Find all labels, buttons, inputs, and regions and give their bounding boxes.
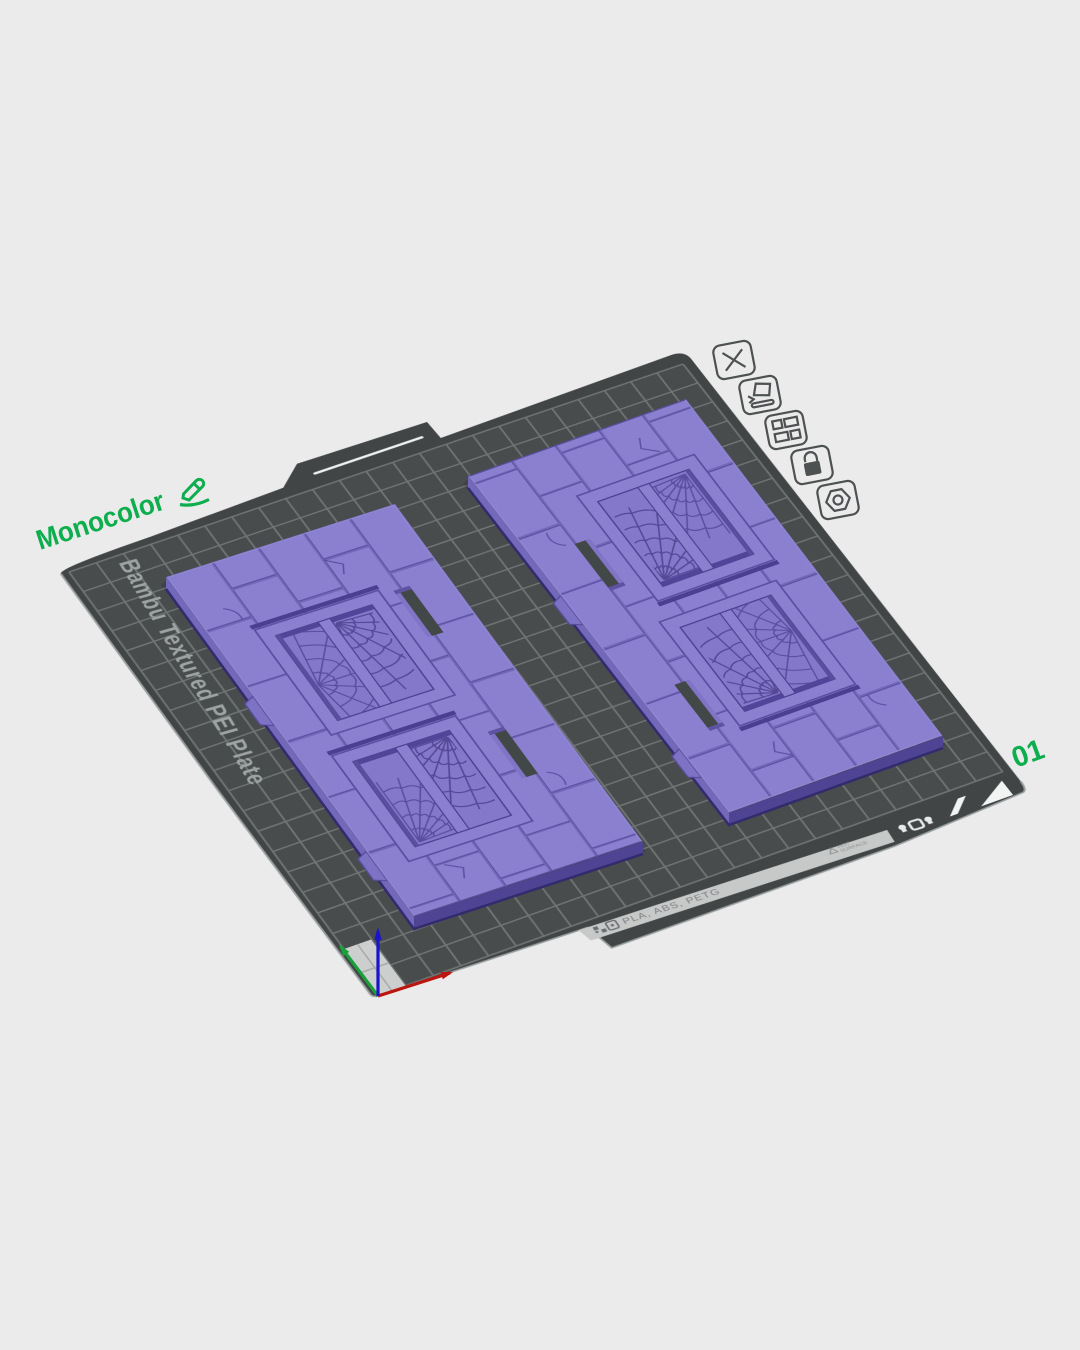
svg-text:01: 01: [1007, 733, 1048, 774]
svg-text:Monocolor: Monocolor: [32, 485, 168, 556]
